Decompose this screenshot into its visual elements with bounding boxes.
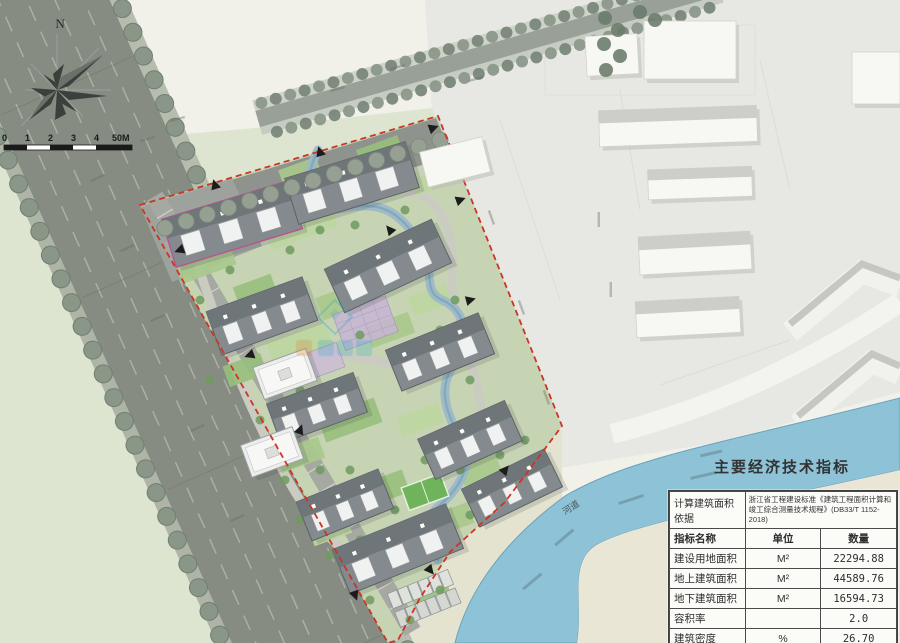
street-tree-icon (305, 173, 321, 189)
site-tree-icon (356, 331, 365, 340)
basis-text: 浙江省工程建设标准《建筑工程面积计算和竣工综合测量技术规程》(DB33/T 11… (745, 492, 896, 529)
row-unit: M² (745, 589, 821, 609)
street-tree-icon (597, 37, 611, 51)
row-qty: 16594.73 (821, 589, 897, 609)
row-name: 地上建筑面积 (670, 569, 746, 589)
svg-text:3: 3 (71, 133, 76, 143)
street-tree-icon (369, 152, 385, 168)
street-tree-icon (633, 5, 647, 19)
svg-text:4: 4 (94, 133, 99, 143)
table-row: 地上建筑面积 M² 44589.76 (670, 569, 897, 589)
street-tree-icon (242, 193, 258, 209)
row-name: 容积率 (670, 609, 746, 629)
row-name: 建筑密度 (670, 629, 746, 643)
table-row: 建设用地面积 M² 22294.88 (670, 549, 897, 569)
indicators-table: 计算建筑面积依据 浙江省工程建设标准《建筑工程面积计算和竣工综合测量技术规程》(… (669, 491, 897, 643)
street-tree-icon (199, 206, 215, 222)
neighbor-building (635, 296, 744, 342)
col-header-qty: 数量 (821, 529, 897, 549)
table-header-row: 指标名称 单位 数量 (670, 529, 897, 549)
street-tree-icon (598, 11, 612, 25)
svg-text:50M: 50M (112, 133, 130, 143)
neighbor-building (852, 52, 900, 108)
svg-text:0: 0 (2, 133, 7, 143)
indicators-title: 主要经济技术指标 (664, 456, 900, 477)
col-header-name: 指标名称 (670, 529, 746, 549)
site-tree-icon (196, 296, 205, 305)
street-tree-icon (390, 146, 406, 162)
street-tree-icon (157, 220, 173, 236)
site-tree-icon (366, 596, 375, 605)
basis-label: 计算建筑面积依据 (670, 492, 746, 529)
table-row: 计算建筑面积依据 浙江省工程建设标准《建筑工程面积计算和竣工综合测量技术规程》(… (670, 492, 897, 529)
street-tree-icon (347, 159, 363, 175)
table-row: 建筑密度 % 26.70 (670, 629, 897, 643)
row-name: 建设用地面积 (670, 549, 746, 569)
site-tree-icon (451, 296, 460, 305)
indicators-panel: 计算建筑面积依据 浙江省工程建设标准《建筑工程面积计算和竣工综合测量技术规程》(… (668, 490, 898, 643)
street-tree-icon (326, 166, 342, 182)
site-tree-icon (316, 466, 325, 475)
row-qty: 26.70 (821, 629, 897, 643)
site-tree-icon (256, 416, 265, 425)
row-unit (745, 609, 821, 629)
row-unit: M² (745, 569, 821, 589)
site-tree-icon (316, 226, 325, 235)
svg-text:2: 2 (48, 133, 53, 143)
building-roof (852, 52, 900, 104)
row-qty: 2.0 (821, 609, 897, 629)
street-tree-icon (613, 49, 627, 63)
north-label: N (55, 16, 65, 31)
street-tree-icon (599, 63, 613, 77)
row-unit: % (745, 629, 821, 643)
street-tree-icon (220, 200, 236, 216)
site-tree-icon (436, 586, 445, 595)
site-tree-icon (281, 476, 290, 485)
col-header-unit: 单位 (745, 529, 821, 549)
site-tree-icon (401, 206, 410, 215)
neighbor-building (644, 21, 739, 83)
row-unit: M² (745, 549, 821, 569)
dimension-label (598, 212, 600, 227)
site-tree-icon (226, 266, 235, 275)
site-tree-icon (351, 221, 360, 230)
table-row: 容积率 2.0 (670, 609, 897, 629)
neighbor-building (598, 105, 760, 151)
dimension-label (610, 282, 612, 297)
street-tree-icon (648, 13, 662, 27)
site-plan-canvas: 河道 N 0 1 (0, 0, 900, 643)
row-name: 地下建筑面积 (670, 589, 746, 609)
site-tree-icon (286, 246, 295, 255)
street-tree-icon (611, 23, 625, 37)
neighbor-building (648, 166, 756, 204)
street-tree-icon (263, 186, 279, 202)
table-row: 地下建筑面积 M² 16594.73 (670, 589, 897, 609)
neighbor-building (638, 231, 755, 279)
svg-text:1: 1 (25, 133, 30, 143)
site-tree-icon (346, 466, 355, 475)
row-qty: 44589.76 (821, 569, 897, 589)
street-tree-icon (178, 213, 194, 229)
street-tree-icon (284, 179, 300, 195)
site-tree-icon (206, 376, 215, 385)
building-roof (644, 21, 736, 79)
row-qty: 22294.88 (821, 549, 897, 569)
site-tree-icon (466, 376, 475, 385)
